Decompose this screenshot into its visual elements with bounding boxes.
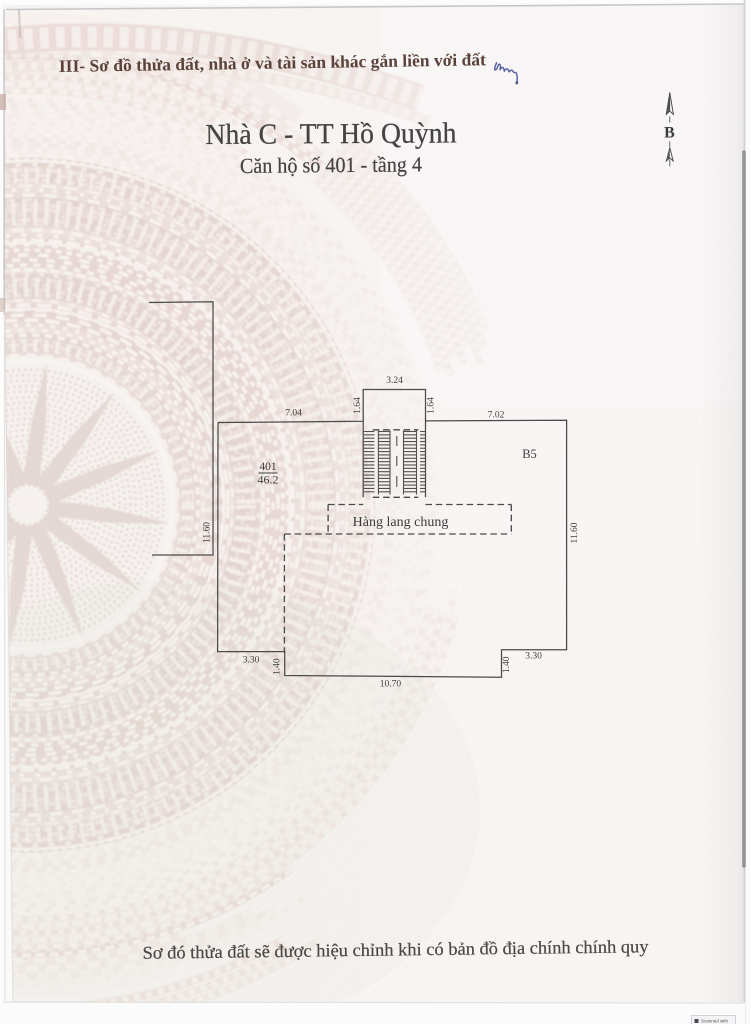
svg-text:46.2: 46.2 bbox=[258, 473, 279, 487]
svg-text:1.40: 1.40 bbox=[273, 658, 283, 675]
svg-text:Scanned with: Scanned with bbox=[701, 1019, 729, 1024]
svg-text:Căn hộ số 401 - tầng 4: Căn hộ số 401 - tầng 4 bbox=[240, 152, 422, 178]
svg-text:1.40: 1.40 bbox=[502, 656, 512, 673]
svg-text:B5: B5 bbox=[522, 447, 537, 461]
svg-text:3.30: 3.30 bbox=[243, 656, 260, 666]
svg-text:401: 401 bbox=[259, 461, 277, 473]
svg-text:3.30: 3.30 bbox=[525, 652, 542, 662]
svg-text:Nhà C - TT Hồ Quỳnh: Nhà C - TT Hồ Quỳnh bbox=[205, 117, 457, 151]
svg-text:1.64: 1.64 bbox=[353, 397, 363, 414]
svg-text:10.70: 10.70 bbox=[380, 680, 402, 690]
svg-text:1.64: 1.64 bbox=[427, 397, 437, 414]
svg-text:11.60: 11.60 bbox=[202, 522, 212, 543]
svg-text:Hàng lang chung: Hàng lang chung bbox=[353, 515, 449, 530]
svg-text:B: B bbox=[664, 124, 675, 141]
svg-text:7.04: 7.04 bbox=[285, 409, 302, 419]
svg-text:7.02: 7.02 bbox=[488, 411, 505, 421]
svg-text:11.60: 11.60 bbox=[570, 522, 580, 543]
svg-text:3.24: 3.24 bbox=[386, 376, 403, 386]
